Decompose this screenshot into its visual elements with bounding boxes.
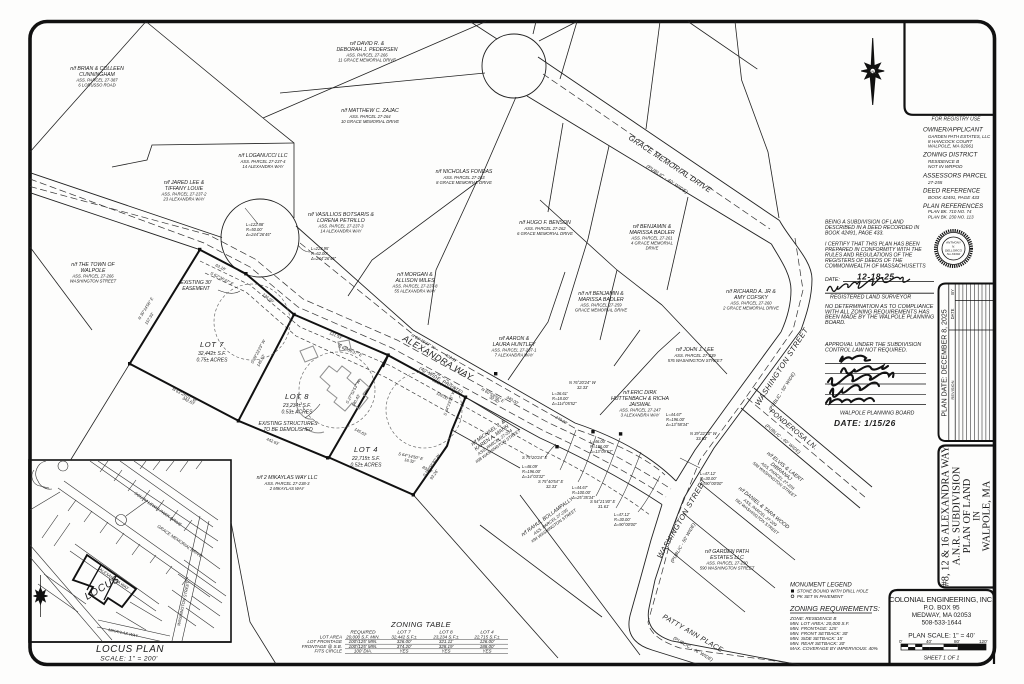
svg-text:BY: BY <box>950 289 955 295</box>
svg-text:DATE: DATE <box>950 308 955 319</box>
svg-text:COMMONWEALTH OF MASSACHUSETTS: COMMONWEALTH OF MASSACHUSETTS <box>825 264 926 270</box>
svg-text:Δ=13°58'34": Δ=13°58'34" <box>665 422 689 427</box>
svg-text:IN: IN <box>972 511 982 521</box>
svg-text:BOOK 42491, PAGE 433.: BOOK 42491, PAGE 433. <box>825 231 884 237</box>
svg-text:REGISTERED LAND SURVEYOR: REGISTERED LAND SURVEYOR <box>830 295 911 301</box>
svg-text:7 ALEXANDRA WAY: 7 ALEXANDRA WAY <box>495 353 535 358</box>
svg-text:590 WASHINGTON STREET: 590 WASHINGTON STREET <box>700 566 755 571</box>
svg-text:Δ=25°35'34": Δ=25°35'34" <box>571 495 595 500</box>
svg-text:BOOK 42491, PAGE 433: BOOK 42491, PAGE 433 <box>928 195 980 200</box>
svg-text:508-533-1644: 508-533-1644 <box>922 620 962 627</box>
svg-text:FITS CIRCLE: FITS CIRCLE <box>314 648 343 653</box>
svg-text:10 GRACE MEMORIAL DRIVE: 10 GRACE MEMORIAL DRIVE <box>341 119 399 124</box>
svg-text:Δ=244°26'45": Δ=244°26'45" <box>310 256 336 261</box>
svg-text:120': 120' <box>979 639 988 644</box>
svg-text:Δ=244°26'45": Δ=244°26'45" <box>245 232 271 237</box>
svg-text:OWNER/APPLICANT: OWNER/APPLICANT <box>923 127 984 134</box>
svg-text:23 ALEXANDRA WAY: 23 ALEXANDRA WAY <box>162 197 205 202</box>
svg-text:100' DIA.: 100' DIA. <box>354 648 372 653</box>
svg-text:MONUMENT LEGEND: MONUMENT LEGEND <box>790 583 852 589</box>
svg-text:MEDWAY, MA 02053: MEDWAY, MA 02053 <box>912 612 972 619</box>
svg-text:FOR REGISTRY USE: FOR REGISTRY USE <box>932 117 982 123</box>
svg-text:32.33': 32.33' <box>577 385 588 390</box>
svg-text:YES: YES <box>441 648 450 653</box>
svg-text:2 MIKAYLAS WAY: 2 MIKAYLAS WAY <box>269 486 306 491</box>
svg-text:P.O. BOX 95: P.O. BOX 95 <box>923 605 960 612</box>
svg-text:ZONING TABLE: ZONING TABLE <box>390 620 451 629</box>
svg-text:3 ALEXANDRA WAY: 3 ALEXANDRA WAY <box>621 413 661 418</box>
svg-text:14 ALEXANDRA WAY: 14 ALEXANDRA WAY <box>320 229 362 234</box>
svg-text:CONTROL LAW NOT REQUIRED.: CONTROL LAW NOT REQUIRED. <box>825 348 907 354</box>
svg-text:PLAN BK. 230 NO. 113: PLAN BK. 230 NO. 113 <box>928 215 974 220</box>
svg-text:0': 0' <box>899 639 903 644</box>
svg-text:0.53± ACRES: 0.53± ACRES <box>282 410 314 416</box>
svg-text:DEED REFERENCE: DEED REFERENCE <box>923 188 981 195</box>
svg-text:32.33': 32.33' <box>546 484 557 489</box>
svg-text:BOARD.: BOARD. <box>825 320 846 326</box>
svg-text:8 GRACE MEMORIAL DRIVE: 8 GRACE MEMORIAL DRIVE <box>436 180 492 185</box>
svg-text:ASSESSORS PARCEL: ASSESSORS PARCEL <box>922 173 988 180</box>
svg-text:32,442± S.F.: 32,442± S.F. <box>198 351 226 357</box>
svg-text:YES: YES <box>482 648 491 653</box>
svg-text:LOT 4: LOT 4 <box>354 445 378 454</box>
svg-text:ZONING REQUIREMENTS:: ZONING REQUIREMENTS: <box>789 604 880 613</box>
svg-text:11 GRACE MEMORIAL DRIVE: 11 GRACE MEMORIAL DRIVE <box>338 58 396 63</box>
svg-text:Δ=114°05'52": Δ=114°05'52" <box>551 401 577 406</box>
svg-text:NOT IN WRPOD: NOT IN WRPOD <box>928 164 963 169</box>
svg-text:WALPOLE PLANNING BOARD: WALPOLE PLANNING BOARD <box>840 411 915 417</box>
svg-text:Δ=90°00'00": Δ=90°00'00" <box>699 481 723 486</box>
svg-text:YES: YES <box>399 648 408 653</box>
svg-text:LOT 7: LOT 7 <box>200 340 224 349</box>
svg-text:A.N.R. SUBDIVISION: A.N.R. SUBDIVISION <box>952 466 963 565</box>
svg-text:No.34302: No.34302 <box>947 252 961 256</box>
svg-text:SHEET 1 OF 1: SHEET 1 OF 1 <box>924 656 960 662</box>
svg-text:2 GRACE MEMORIAL DRIVE: 2 GRACE MEMORIAL DRIVE <box>722 306 779 311</box>
svg-text:PK SET IN PAVEMENT: PK SET IN PAVEMENT <box>797 594 843 599</box>
svg-text:576 WASHINGTON STREET: 576 WASHINGTON STREET <box>668 358 723 363</box>
svg-text:31.61': 31.61' <box>598 504 609 509</box>
svg-text:6 LORUSSO ROAD: 6 LORUSSO ROAD <box>78 83 115 88</box>
svg-text:#8, 12 & 16 ALEXANDRA WAY: #8, 12 & 16 ALEXANDRA WAY <box>941 445 952 586</box>
svg-text:STONE BOUND WITH DRILL HOLE: STONE BOUND WITH DRILL HOLE <box>797 589 868 594</box>
svg-text:SCALE: 1" = 200': SCALE: 1" = 200' <box>100 656 158 663</box>
svg-text:PLAN SCALE: 1" = 40': PLAN SCALE: 1" = 40' <box>908 633 974 640</box>
svg-text:6 GRACE MEMORIAL DRIVE: 6 GRACE MEMORIAL DRIVE <box>517 231 573 236</box>
svg-text:ZONING DISTRICT: ZONING DISTRICT <box>922 152 979 159</box>
svg-text:COLONIAL ENGINEERING, INC.: COLONIAL ENGINEERING, INC. <box>889 595 994 604</box>
svg-text:WALPOLE, MA: WALPOLE, MA <box>982 480 993 551</box>
svg-text:MAX. COVERAGE BY IMPERVIOUS: 4: MAX. COVERAGE BY IMPERVIOUS: 40% <box>790 646 878 651</box>
svg-text:N: N <box>871 69 874 74</box>
svg-text:27-255: 27-255 <box>927 180 943 185</box>
svg-text:LOCUS PLAN: LOCUS PLAN <box>96 644 164 655</box>
svg-text:DRIVE: DRIVE <box>646 246 659 251</box>
svg-text:DATE: 1/15/26: DATE: 1/15/26 <box>834 418 896 428</box>
svg-text:55 ALEXANDRA WAY: 55 ALEXANDRA WAY <box>394 289 436 294</box>
svg-text:0.52± ACRES: 0.52± ACRES <box>351 463 383 469</box>
svg-text:WASHINGTON STREET: WASHINGTON STREET <box>70 279 117 284</box>
svg-text:PLAN DATE: DECEMBER 8, 2025: PLAN DATE: DECEMBER 8, 2025 <box>942 309 949 416</box>
svg-text:80': 80' <box>954 639 960 644</box>
svg-text:WALPOLE, MA 02061: WALPOLE, MA 02061 <box>928 144 974 149</box>
svg-text:33.63': 33.63' <box>696 436 707 441</box>
svg-text:22,715± S.F.: 22,715± S.F. <box>351 456 380 462</box>
svg-text:PLAN BK. 710 NO. 74: PLAN BK. 710 NO. 74 <box>928 209 972 214</box>
svg-text:Δ=13°09'52": Δ=13°09'52" <box>589 449 613 454</box>
svg-text:S 75°20'24" E: S 75°20'24" E <box>522 455 548 460</box>
svg-text:12-18-25: 12-18-25 <box>857 272 895 282</box>
svg-text:EASEMENT: EASEMENT <box>182 286 210 292</box>
svg-text:14 ALEXANDRA WAY: 14 ALEXANDRA WAY <box>242 164 284 169</box>
svg-text:DATE:: DATE: <box>825 277 840 283</box>
svg-text:Δ=90°00'00": Δ=90°00'00" <box>613 522 637 527</box>
svg-text:TO BE DEMOLISHED: TO BE DEMOLISHED <box>263 427 313 433</box>
svg-text:40': 40' <box>926 639 932 644</box>
svg-text:GRACE MEMORIAL DRIVE: GRACE MEMORIAL DRIVE <box>575 308 627 313</box>
svg-text:REVISION: REVISION <box>950 380 955 399</box>
svg-text:0.75± ACRES: 0.75± ACRES <box>197 358 229 364</box>
